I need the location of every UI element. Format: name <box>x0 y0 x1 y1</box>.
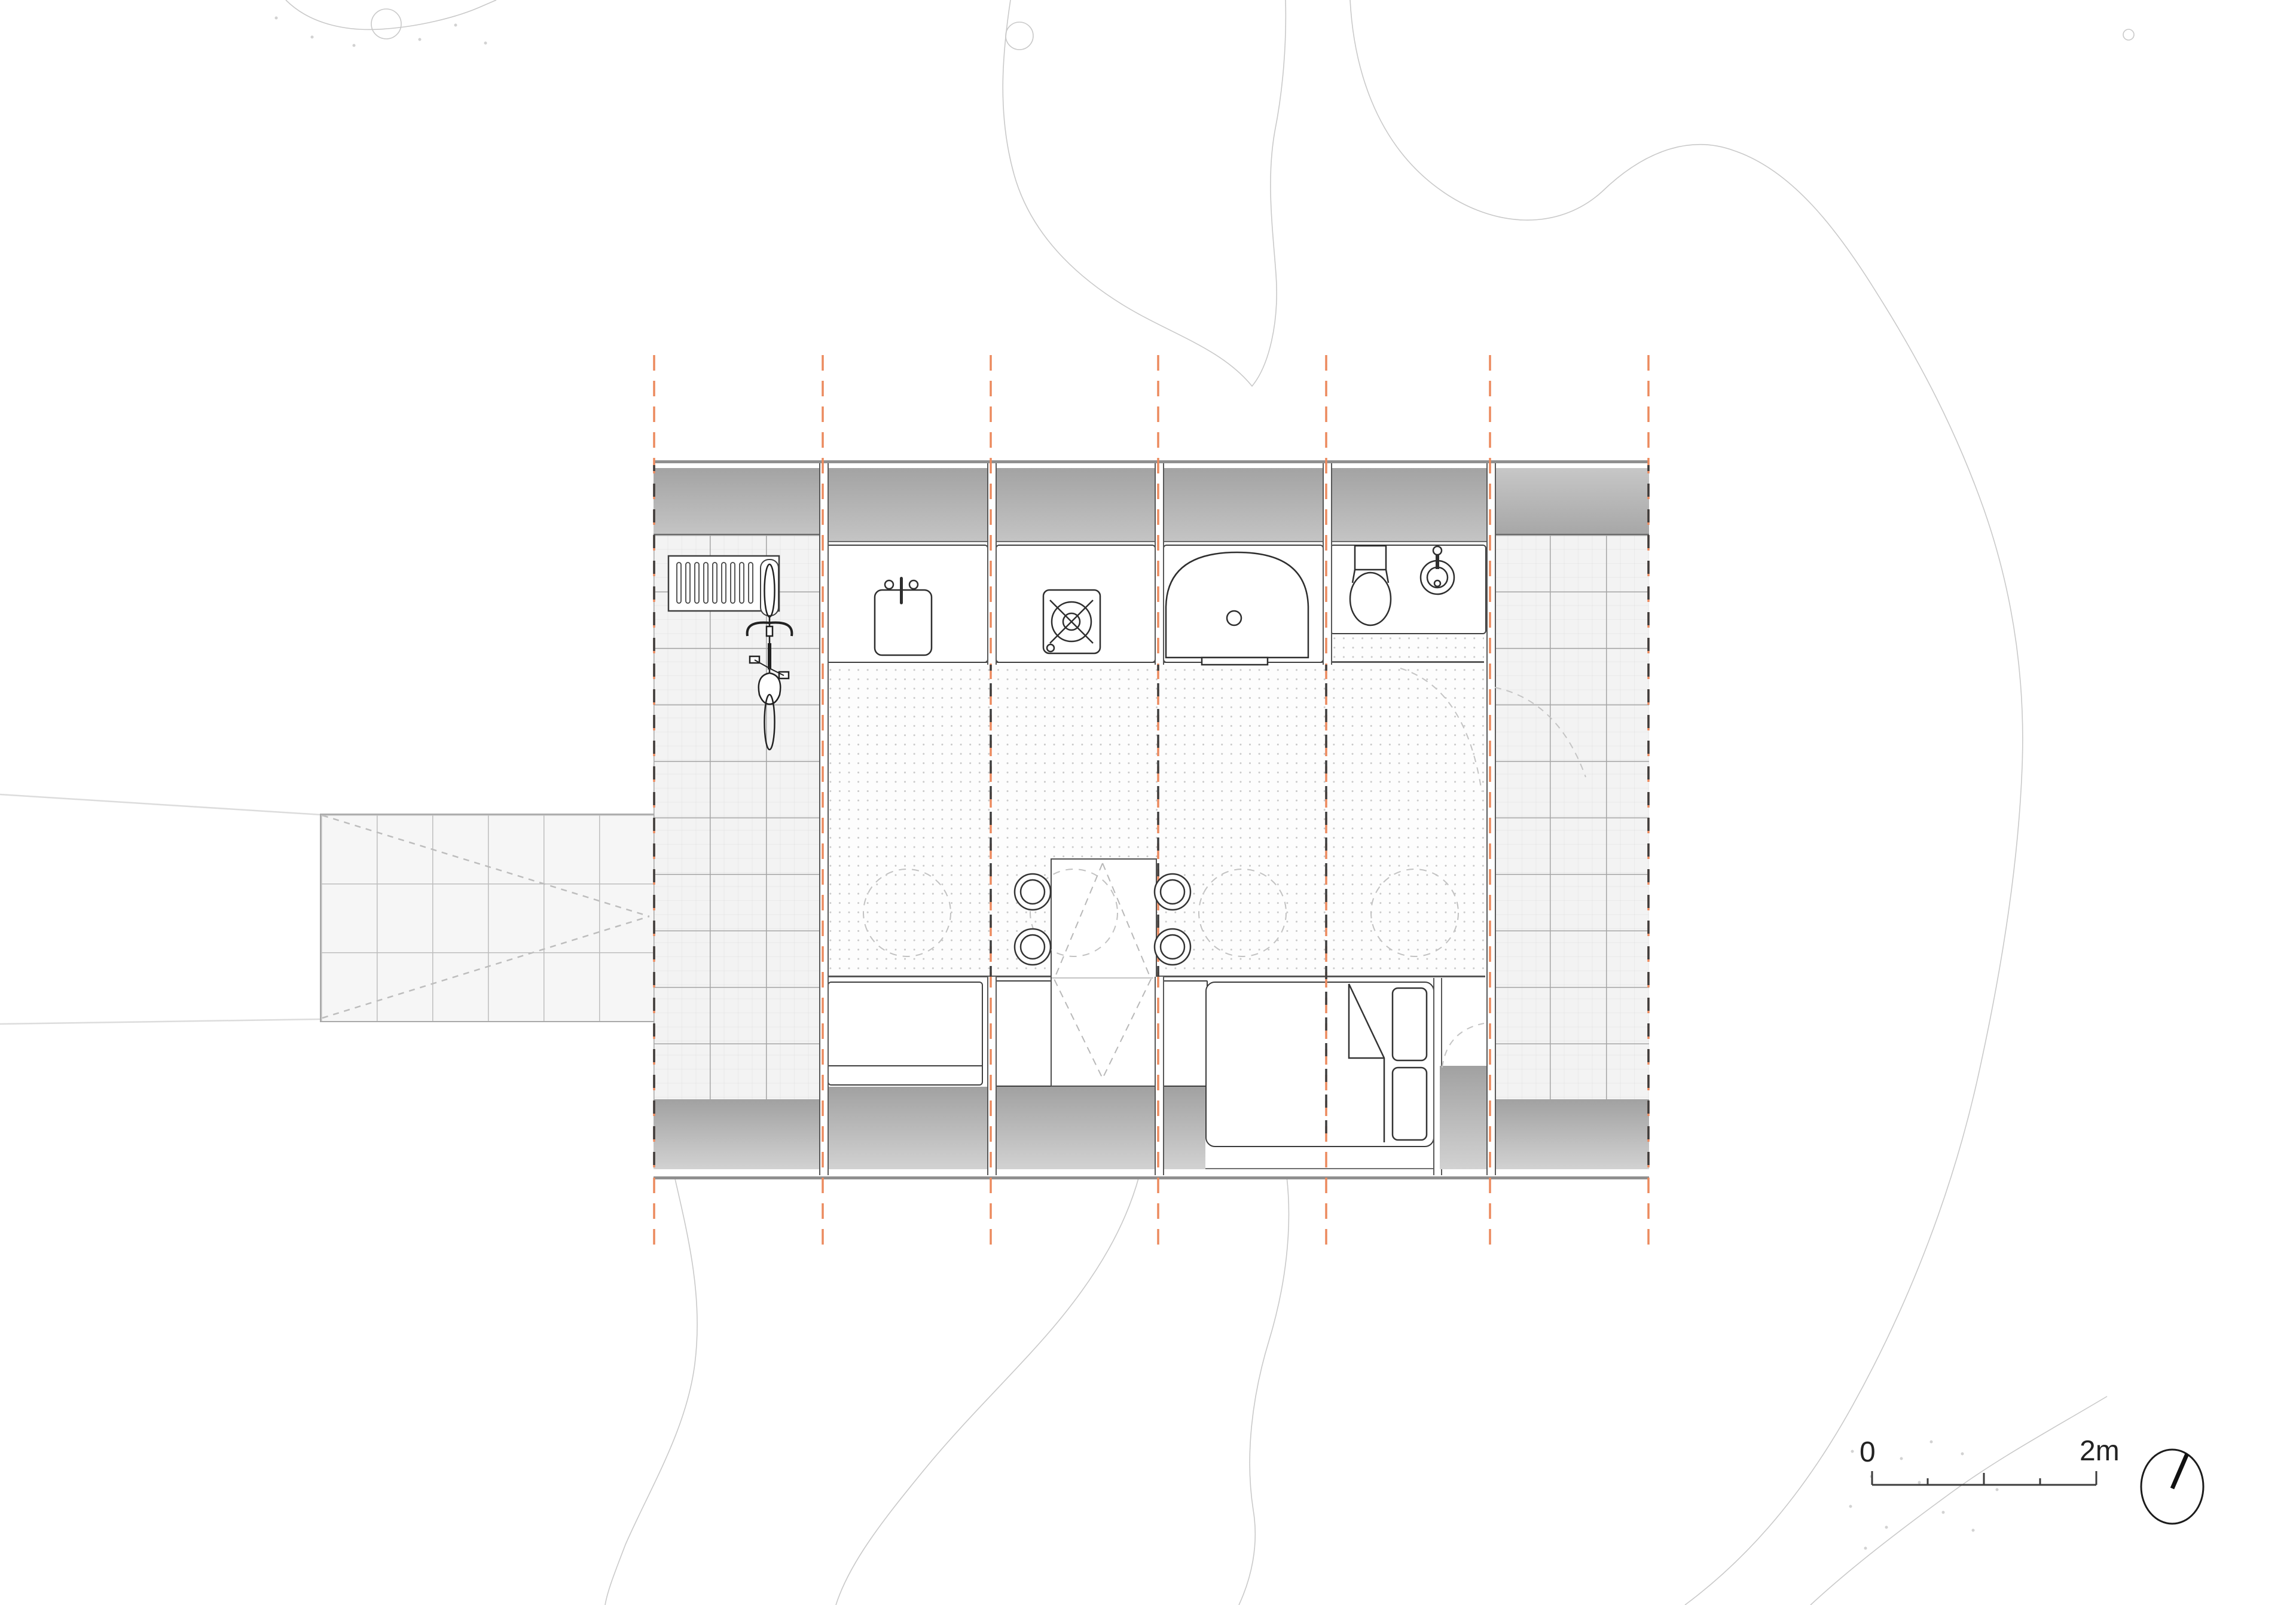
wall-band-bottom <box>826 1087 987 1169</box>
wall-band-bottom <box>994 1087 1155 1169</box>
dining-table <box>1051 858 1157 1087</box>
cooktop-counter <box>996 545 1156 663</box>
road-edge-lines <box>0 794 321 1024</box>
wall-band-top <box>1494 468 1649 535</box>
wall-band-bottom <box>1440 1066 1486 1169</box>
bathroom-cell <box>1163 545 1324 663</box>
terrace-left <box>654 535 823 1099</box>
structural-post <box>987 977 997 1175</box>
wall-band-bottom <box>1494 1099 1649 1169</box>
kitchen-sink-counter <box>826 545 988 663</box>
structural-post <box>1323 463 1332 665</box>
wall-band-bottom <box>1162 1087 1205 1169</box>
bench-seat <box>828 982 983 1086</box>
wall-band-top <box>994 468 1155 542</box>
wall-band-top <box>1330 468 1486 542</box>
structural-post <box>987 463 997 665</box>
scale-zero-label: 0 <box>1860 1438 1876 1467</box>
structural-post <box>1486 463 1496 1175</box>
bench-seat-line <box>829 1065 982 1066</box>
wall-band-top <box>654 468 819 535</box>
structural-post <box>1155 977 1164 1175</box>
wardrobe <box>1163 980 1208 1087</box>
wall-band-top <box>1162 468 1323 542</box>
entrance-path <box>320 814 656 1022</box>
structural-post <box>819 463 829 1175</box>
floor-plan-sheet: 0 2m <box>0 0 2296 1605</box>
structural-post <box>1155 463 1164 665</box>
scale-end-label: 2m <box>2080 1437 2120 1466</box>
wall-band-bottom <box>654 1099 820 1169</box>
wc-cell <box>1330 545 1486 634</box>
wall-band-top <box>826 468 987 542</box>
terrace-right <box>1494 535 1649 1099</box>
roof-edge-bottom <box>654 1168 1649 1179</box>
scale-bar <box>1872 1471 2096 1485</box>
bed <box>1205 982 1434 1147</box>
north-arrow-icon <box>2141 1450 2203 1524</box>
